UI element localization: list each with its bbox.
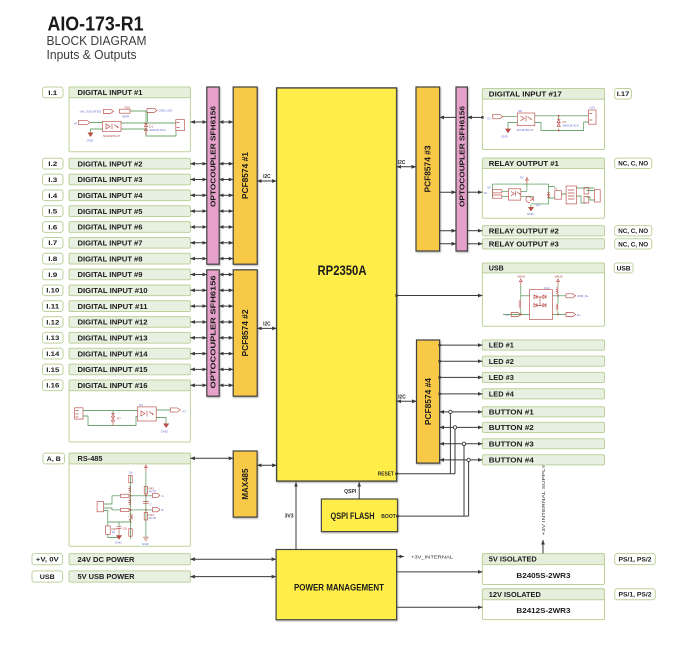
svg-text:RELAY OUTPUT #3: RELAY OUTPUT #3 [489,240,559,249]
svg-text:IO: IO [487,116,491,120]
svg-text:DIGITAL INPUT #12: DIGITAL INPUT #12 [78,318,148,327]
svg-text:SFH6156-2T: SFH6156-2T [517,128,534,132]
svg-text:Inputs & Outputs: Inputs & Outputs [47,47,137,62]
svg-text:1K: 1K [112,530,116,534]
svg-text:I.13: I.13 [46,335,59,342]
svg-text:NC, C, NO: NC, C, NO [618,161,648,168]
svg-text:QSPI FLASH: QSPI FLASH [331,511,375,521]
svg-text:DIGITAL INPUT #8: DIGITAL INPUT #8 [78,254,143,263]
svg-text:PS/1, PS/2: PS/1, PS/2 [619,592,652,599]
svg-text:I.6: I.6 [48,224,57,231]
svg-text:DIGITAL INPUT #16: DIGITAL INPUT #16 [78,381,148,390]
svg-text:I2C: I2C [398,160,406,166]
svg-text:USB_D+: USB_D+ [577,294,589,298]
svg-text:DIGITAL INPUT #5: DIGITAL INPUT #5 [78,207,143,216]
svg-text:RELAY OUTPUT #1: RELAY OUTPUT #1 [489,159,559,168]
svg-text:OPTOCOUPLER SFH6156: OPTOCOUPLER SFH6156 [457,106,466,207]
svg-text:BLOCK DIAGRAM: BLOCK DIAGRAM [47,33,147,48]
svg-text:+IN_ISOLATED: +IN_ISOLATED [79,109,101,113]
svg-text:I.15: I.15 [46,367,59,374]
svg-text:U13: U13 [590,106,596,110]
svg-text:I2C: I2C [263,322,271,328]
svg-text:R16: R16 [125,105,131,109]
svg-text:I.8: I.8 [48,256,57,263]
svg-text:K1: K1 [554,187,558,191]
svg-text:PCF8574 #2: PCF8574 #2 [241,309,250,357]
svg-text:4K7R: 4K7R [149,490,157,494]
svg-text:U8: U8 [518,109,522,113]
svg-text:DIGITAL INPUT #6: DIGITAL INPUT #6 [78,223,143,232]
svg-text:MAX485: MAX485 [241,468,250,500]
svg-text:SMAJ5.0CA: SMAJ5.0CA [563,124,579,128]
svg-text:5V: 5V [487,186,491,190]
svg-text:+3V_INTERNAL: +3V_INTERNAL [411,554,453,560]
svg-text:GND: GND [161,430,169,434]
svg-text:I.12: I.12 [46,319,59,326]
svg-text:D-: D- [506,313,509,317]
svg-text:B2405S-2WR3: B2405S-2WR3 [516,571,570,580]
svg-text:I.2: I.2 [48,161,57,168]
svg-text:I.11: I.11 [46,304,59,311]
svg-text:12V ISOLATED: 12V ISOLATED [489,590,542,599]
svg-text:RP2350A: RP2350A [318,262,367,278]
svg-text:GND: GND [142,542,150,546]
svg-text:DIGITAL INPUT #4: DIGITAL INPUT #4 [78,191,144,200]
svg-text:I.5: I.5 [48,209,57,216]
svg-text:USB: USB [40,574,55,581]
svg-text:SFH6156-2T: SFH6156-2T [103,134,120,138]
svg-text:DIGITAL INPUT #11: DIGITAL INPUT #11 [78,302,148,311]
svg-text:DIGITAL INPUT #15: DIGITAL INPUT #15 [78,365,148,374]
svg-text:PCF8574 #3: PCF8574 #3 [424,145,433,193]
svg-text:DIGITAL INPUT #3: DIGITAL INPUT #3 [78,175,143,184]
svg-text:3V3: 3V3 [285,513,294,519]
svg-text:DIGITAL INPUT #14: DIGITAL INPUT #14 [78,349,149,358]
svg-text:I.16: I.16 [46,383,59,390]
svg-text:I.10: I.10 [46,288,59,295]
svg-text:VBUS: VBUS [517,275,525,279]
svg-text:DIGITAL INPUT #9: DIGITAL INPUT #9 [78,270,143,279]
svg-text:DIGITAL INPUT #2: DIGITAL INPUT #2 [78,159,143,168]
svg-text:24V DC POWER: 24V DC POWER [78,555,136,564]
svg-text:GND_ISO: GND_ISO [159,109,174,113]
svg-text:DIGITAL INPUT #1: DIGITAL INPUT #1 [78,88,143,97]
svg-text:OPTOCOUPLER SFH6156: OPTOCOUPLER SFH6156 [209,106,218,207]
svg-text:BOOT: BOOT [381,514,396,520]
svg-text:BUTTON #1: BUTTON #1 [489,408,534,417]
svg-text:GND: GND [527,212,535,216]
svg-text:4K7R: 4K7R [149,516,157,520]
svg-text:GND: GND [115,541,123,545]
svg-text:5V USB POWER: 5V USB POWER [78,572,136,581]
svg-text:I.1: I.1 [48,90,57,97]
svg-text:I.17: I.17 [617,91,630,98]
svg-text:GND: GND [501,135,509,139]
svg-text:PCF8574 #1: PCF8574 #1 [241,151,250,199]
svg-text:+V, 0V: +V, 0V [36,557,60,564]
svg-text:5V ISOLATED: 5V ISOLATED [489,555,538,564]
svg-text:QSPI: QSPI [344,489,357,495]
svg-text:B2412S-2WR3: B2412S-2WR3 [516,606,570,615]
svg-text:GND: GND [87,139,95,143]
svg-text:I.4: I.4 [48,193,57,200]
svg-text:DIGITAL INPUT #13: DIGITAL INPUT #13 [78,333,148,342]
svg-text:SMAJ5.0CA: SMAJ5.0CA [149,128,165,132]
svg-text:Q1: Q1 [536,203,540,207]
svg-text:A, B: A, B [47,456,61,463]
svg-text:IN: IN [74,122,77,126]
svg-text:RS-485: RS-485 [78,454,103,463]
svg-text:5V: 5V [520,176,524,180]
svg-text:LED #1: LED #1 [489,341,514,350]
svg-text:DIGITAL INPUT #10: DIGITAL INPUT #10 [78,286,148,295]
svg-text:C6: C6 [123,527,127,531]
svg-text:LED #4: LED #4 [489,390,515,399]
svg-text:D7: D7 [117,417,121,421]
svg-text:I2C: I2C [263,174,271,180]
svg-text:I.9: I.9 [48,272,57,279]
svg-text:RELAY OUTPUT #2: RELAY OUTPUT #2 [489,226,559,235]
svg-text:DIGITAL INPUT #7: DIGITAL INPUT #7 [78,239,143,248]
svg-text:POWER MANAGEMENT: POWER MANAGEMENT [294,583,384,593]
svg-text:B: B [162,508,164,512]
svg-text:NC, C, NO: NC, C, NO [618,241,648,248]
svg-text:I2C: I2C [398,395,406,401]
svg-text:PS/1, PS/2: PS/1, PS/2 [619,557,652,564]
svg-text:U12: U12 [544,286,550,290]
svg-text:IO: IO [183,410,187,414]
svg-text:OPTOCOUPLER SFH6156: OPTOCOUPLER SFH6156 [209,276,218,389]
svg-text:BUTTON #4: BUTTON #4 [489,456,535,465]
svg-text:DIGITAL INPUT #17: DIGITAL INPUT #17 [489,90,562,99]
svg-text:5V: 5V [129,471,133,475]
svg-text:I.3: I.3 [48,177,57,184]
svg-text:BUTTON #3: BUTTON #3 [489,439,534,448]
svg-text:+3V INTERNAL SUPPLY: +3V INTERNAL SUPPLY [541,464,546,535]
svg-text:LED #2: LED #2 [489,357,514,366]
svg-text:NC, C, NO: NC, C, NO [618,228,648,235]
svg-text:I.14: I.14 [46,351,59,358]
svg-text:VBUS: VBUS [555,275,563,279]
svg-text:400R: 400R [122,115,130,119]
svg-text:BUTTON #2: BUTTON #2 [489,423,534,432]
svg-text:USB: USB [617,265,631,272]
svg-text:U9: U9 [139,403,143,407]
svg-text:LED #3: LED #3 [489,373,514,382]
svg-text:I.7: I.7 [48,240,57,247]
svg-text:USB: USB [489,264,504,273]
svg-text:PCF8574 #4: PCF8574 #4 [424,377,433,425]
svg-text:RESET: RESET [378,472,394,478]
svg-text:D+: D+ [577,313,581,317]
